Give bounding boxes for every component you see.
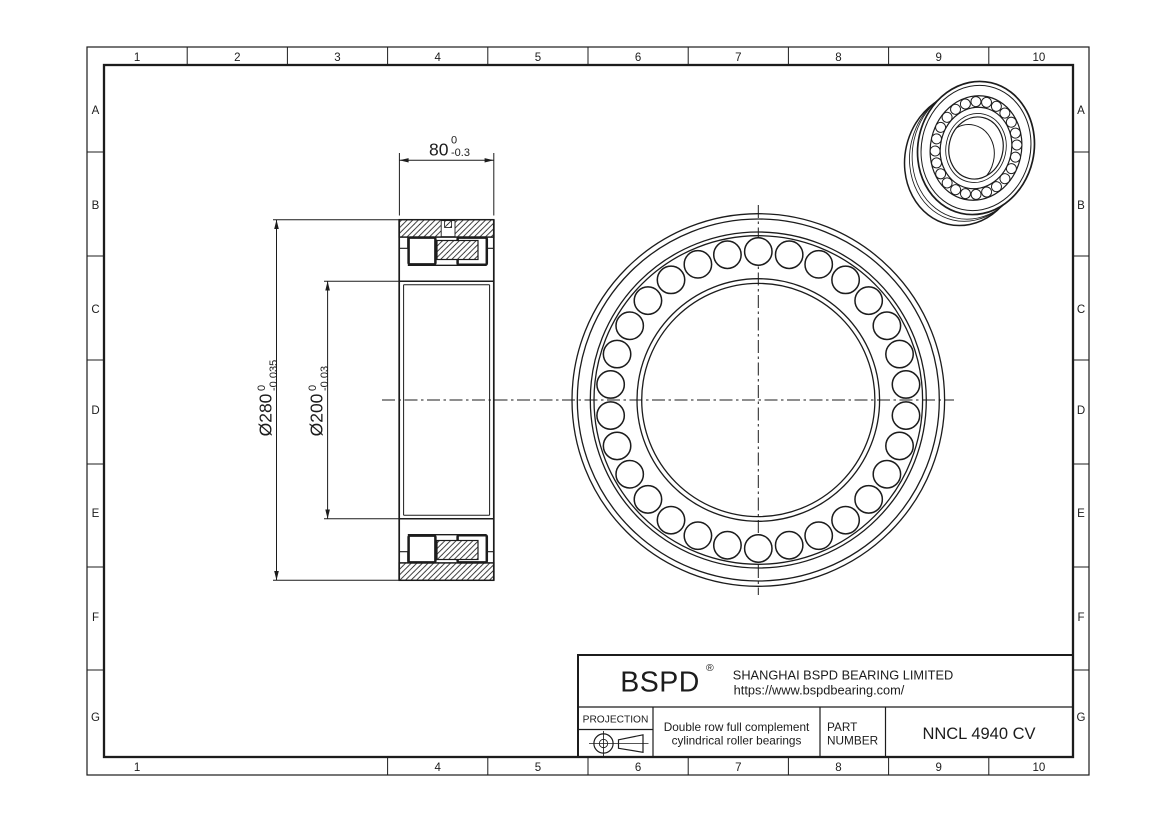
dim-width-tol-lower: -0.3 (451, 147, 470, 159)
grid-label: 5 (535, 762, 541, 774)
grid-label: 9 (935, 52, 941, 64)
grid-label: D (91, 405, 99, 417)
dimension-width: 80 0 -0.3 (399, 135, 493, 216)
dim-od-value: Ø280 (256, 393, 276, 436)
dim-width-tol-upper: 0 (451, 135, 457, 147)
grid-label: 4 (434, 762, 441, 774)
dim-od-tol-upper: 0 (256, 385, 268, 391)
grid-label: 4 (434, 52, 441, 64)
projection-label: PROJECTION (583, 715, 649, 726)
grid-label: 8 (835, 52, 841, 64)
grid-label: 2 (234, 52, 240, 64)
grid-label: G (91, 712, 100, 724)
grid-label: G (1077, 712, 1086, 724)
grid-label: 9 (935, 762, 941, 774)
grid-label: B (1077, 200, 1085, 212)
grid-label: 8 (835, 762, 841, 774)
lip-top-left (399, 237, 408, 248)
grid-label: A (92, 105, 100, 117)
grid-label: B (92, 200, 100, 212)
registered-mark: ® (706, 662, 714, 674)
grid-label: 7 (735, 52, 741, 64)
grid-label: 1 (134, 762, 140, 774)
dim-width-value: 80 (429, 140, 449, 160)
roller-top-left (409, 238, 436, 265)
iso-view (891, 67, 1047, 239)
lip-bottom-left (399, 552, 408, 563)
dim-bore-value: Ø200 (307, 393, 327, 436)
description-line1: Double row full complement (664, 720, 810, 734)
projection-symbol-icon (589, 731, 649, 756)
grid-label: F (1077, 612, 1084, 624)
grid-label: 6 (635, 762, 641, 774)
title-block: BSPD ® SHANGHAI BSPD BEARING LIMITED htt… (578, 655, 1073, 757)
grid-label: 6 (635, 52, 641, 64)
part-number-label-line1: PART (827, 720, 857, 734)
technical-drawing: 12345678910145678910AABBCCDDEEFFGG (0, 0, 1169, 826)
dim-od-tol-lower: -0.035 (268, 360, 280, 391)
grid-label: 5 (535, 52, 541, 64)
company-website: https://www.bspdbearing.com/ (734, 683, 905, 698)
grid-label: E (92, 508, 100, 520)
grid-label: 7 (735, 762, 741, 774)
grid-label: 10 (1033, 762, 1046, 774)
roller-bottom-left (409, 536, 436, 563)
grid-label: 1 (134, 52, 140, 64)
grid-label: E (1077, 508, 1085, 520)
company-name: SHANGHAI BSPD BEARING LIMITED (733, 668, 953, 683)
grid-label: C (1077, 304, 1085, 316)
part-number-value: NNCL 4940 CV (922, 725, 1035, 743)
grid-label: D (1077, 405, 1085, 417)
company-logo: BSPD (620, 667, 700, 699)
grid-label: 10 (1033, 52, 1046, 64)
grid-label: F (92, 612, 99, 624)
part-number-label-line2: NUMBER (827, 734, 878, 748)
grid-label: 3 (334, 52, 340, 64)
grid-label: C (91, 304, 99, 316)
grid-label: A (1077, 105, 1085, 117)
description-line2: cylindrical roller bearings (672, 734, 802, 748)
dim-bore-tol-upper: 0 (307, 385, 319, 391)
drawing-sheet: 12345678910145678910AABBCCDDEEFFGG (0, 0, 1169, 826)
dim-bore-tol-lower: -0.03 (319, 366, 331, 391)
